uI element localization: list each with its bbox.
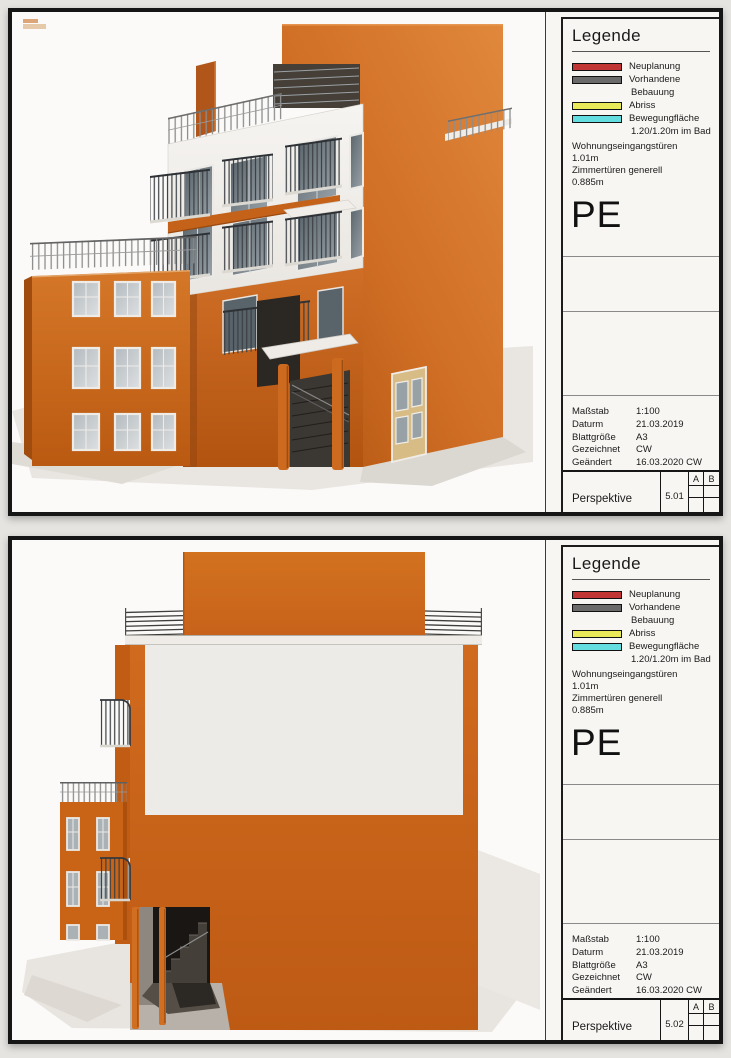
legend-item-bewegungflaeche-line2: 1.20/1.20m im Bad (572, 125, 715, 138)
titleblock-row: Daturm21.03.2019 (572, 419, 719, 432)
legend-section: Legende Neuplanung Vorhandene Bebauung A… (563, 19, 719, 257)
view-label: Perspektive (563, 1000, 660, 1040)
titleblock-rows: Maßstab1:100 Daturm21.03.2019 Blattgröße… (563, 396, 719, 470)
legend-swatch-abriss (572, 630, 622, 638)
revision-col-a: A (689, 1000, 704, 1014)
panel-empty-section (563, 785, 719, 840)
revision-grid: A B (688, 472, 719, 512)
panel-empty-section (563, 257, 719, 312)
revision-col-a: A (689, 472, 704, 486)
legend-swatch-vorhandene (572, 76, 622, 84)
info-panel-2: Legende Neuplanung Vorhandene Bebauung A… (561, 545, 719, 1040)
panel-divider (545, 540, 546, 1040)
drawing-area-1 (12, 12, 545, 512)
legend-item-neuplanung: Neuplanung (572, 60, 715, 73)
legend-swatch-vorhandene (572, 604, 622, 612)
titleblock-row: BlattgrößeA3 (572, 432, 719, 445)
legend-items: Neuplanung Vorhandene Bebauung Abriss Be… (572, 60, 715, 138)
plan-code: PE (571, 724, 719, 761)
legend-swatch-neuplanung (572, 591, 622, 599)
legend-swatch-bewegungflaeche (572, 115, 622, 123)
legend-title: Legende (572, 554, 710, 580)
revision-col-b: B (704, 1000, 719, 1014)
page-canvas: Legende Neuplanung Vorhandene Bebauung A… (0, 0, 731, 1058)
sheet-title-block: Perspektive 5.01 A B (563, 470, 719, 512)
legend-notes: Wohnungseingangstüren 1.01m Zimmertüren … (572, 141, 715, 189)
legend-item-bewegungflaeche: Bewegungfläche (572, 112, 715, 125)
panel-empty-section (563, 312, 719, 396)
panel-empty-section (563, 840, 719, 924)
sheet-title-block: Perspektive 5.02 A B (563, 998, 719, 1040)
corner-stamp (23, 19, 46, 29)
legend-item-abriss: Abriss (572, 627, 715, 640)
legend-notes: Wohnungseingangstüren 1.01m Zimmertüren … (572, 669, 715, 717)
titleblock-row: Daturm21.03.2019 (572, 947, 719, 960)
legend-item-vorhandene-line2: Bebauung (572, 86, 715, 99)
legend-title: Legende (572, 26, 710, 52)
legend-swatch-abriss (572, 102, 622, 110)
titleblock-row: Maßstab1:100 (572, 406, 719, 419)
building-render-elevation (12, 540, 545, 1040)
info-panel-1: Legende Neuplanung Vorhandene Bebauung A… (561, 17, 719, 512)
building-render-perspective (12, 12, 545, 512)
side-wing (60, 700, 130, 940)
drawing-area-2 (12, 540, 545, 1040)
titleblock-row: GezeichnetCW (572, 972, 719, 985)
titleblock-row: Maßstab1:100 (572, 934, 719, 947)
titleblock-rows: Maßstab1:100 Daturm21.03.2019 Blattgröße… (563, 924, 719, 998)
legend-items: Neuplanung Vorhandene Bebauung Abriss Be… (572, 588, 715, 666)
revision-grid: A B (688, 1000, 719, 1040)
view-label: Perspektive (563, 472, 660, 512)
titleblock-row: Geändert16.03.2020 CW (572, 985, 719, 998)
legend-item-vorhandene: Vorhandene (572, 73, 715, 86)
revision-col-b: B (704, 472, 719, 486)
legend-section: Legende Neuplanung Vorhandene Bebauung A… (563, 547, 719, 785)
titleblock-row: GezeichnetCW (572, 444, 719, 457)
legend-item-vorhandene: Vorhandene (572, 601, 715, 614)
side-wing (24, 236, 196, 466)
plan-code: PE (571, 196, 719, 233)
titleblock-row: Geändert16.03.2020 CW (572, 457, 719, 470)
legend-item-abriss: Abriss (572, 99, 715, 112)
titleblock-row: BlattgrößeA3 (572, 960, 719, 973)
legend-swatch-bewegungflaeche (572, 643, 622, 651)
panel-divider (545, 12, 546, 512)
sheet-2: Legende Neuplanung Vorhandene Bebauung A… (8, 536, 723, 1044)
legend-item-bewegungflaeche-line2: 1.20/1.20m im Bad (572, 653, 715, 666)
sheet-number: 5.01 (660, 472, 688, 512)
legend-item-bewegungflaeche: Bewegungfläche (572, 640, 715, 653)
legend-item-neuplanung: Neuplanung (572, 588, 715, 601)
legend-item-vorhandene-line2: Bebauung (572, 614, 715, 627)
sheet-1: Legende Neuplanung Vorhandene Bebauung A… (8, 8, 723, 516)
legend-swatch-neuplanung (572, 63, 622, 71)
sheet-number: 5.02 (660, 1000, 688, 1040)
